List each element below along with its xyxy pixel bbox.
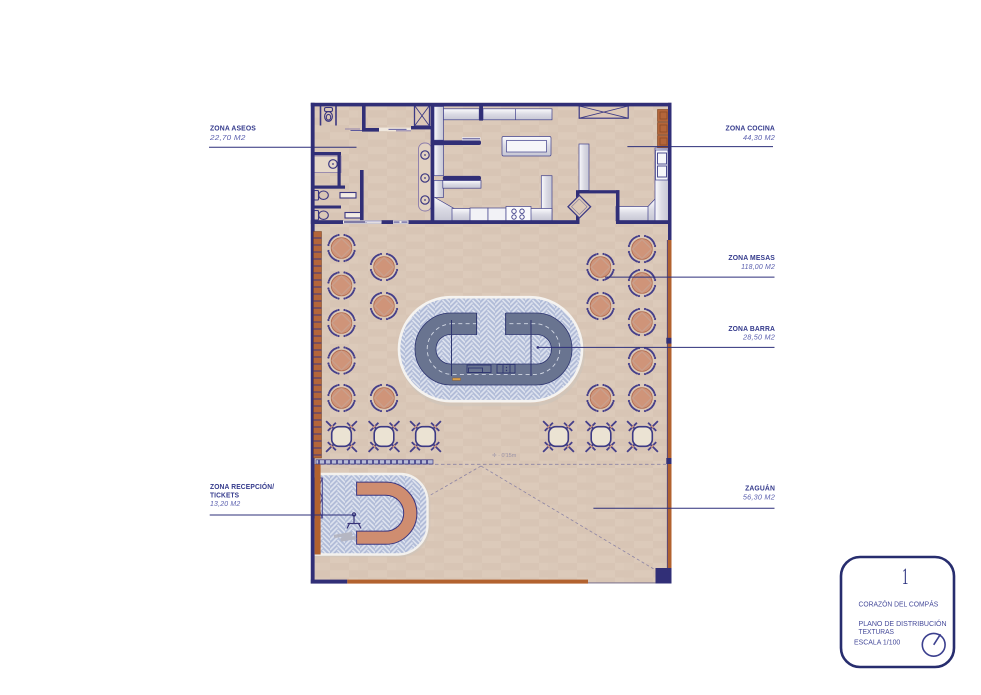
svg-text:1: 1 (902, 564, 908, 590)
svg-text:ZONA ASEOS: ZONA ASEOS (210, 124, 256, 133)
svg-text:ESCALA 1/100: ESCALA 1/100 (854, 638, 900, 647)
svg-text:28,50 M2: 28,50 M2 (742, 333, 775, 342)
svg-text:13,20 M2: 13,20 M2 (210, 499, 240, 508)
svg-text:22,70 M2: 22,70 M2 (209, 133, 246, 142)
svg-text:ZONA MESAS: ZONA MESAS (728, 253, 775, 262)
svg-text:118,00 M2: 118,00 M2 (741, 262, 775, 271)
svg-text:✛ · 0'15m: ✛ · 0'15m (492, 452, 517, 459)
svg-text:44,30 M2: 44,30 M2 (743, 133, 775, 142)
svg-text:ZONA COCINA: ZONA COCINA (726, 124, 776, 133)
svg-text:CORAZÓN DEL COMPÁS: CORAZÓN DEL COMPÁS (859, 600, 939, 609)
svg-text:TEXTURAS: TEXTURAS (859, 627, 895, 636)
svg-text:ZONA BARRA: ZONA BARRA (728, 324, 775, 333)
svg-text:56,30 M2: 56,30 M2 (743, 492, 775, 501)
svg-text:ZAGUÁN: ZAGUÁN (745, 484, 775, 493)
